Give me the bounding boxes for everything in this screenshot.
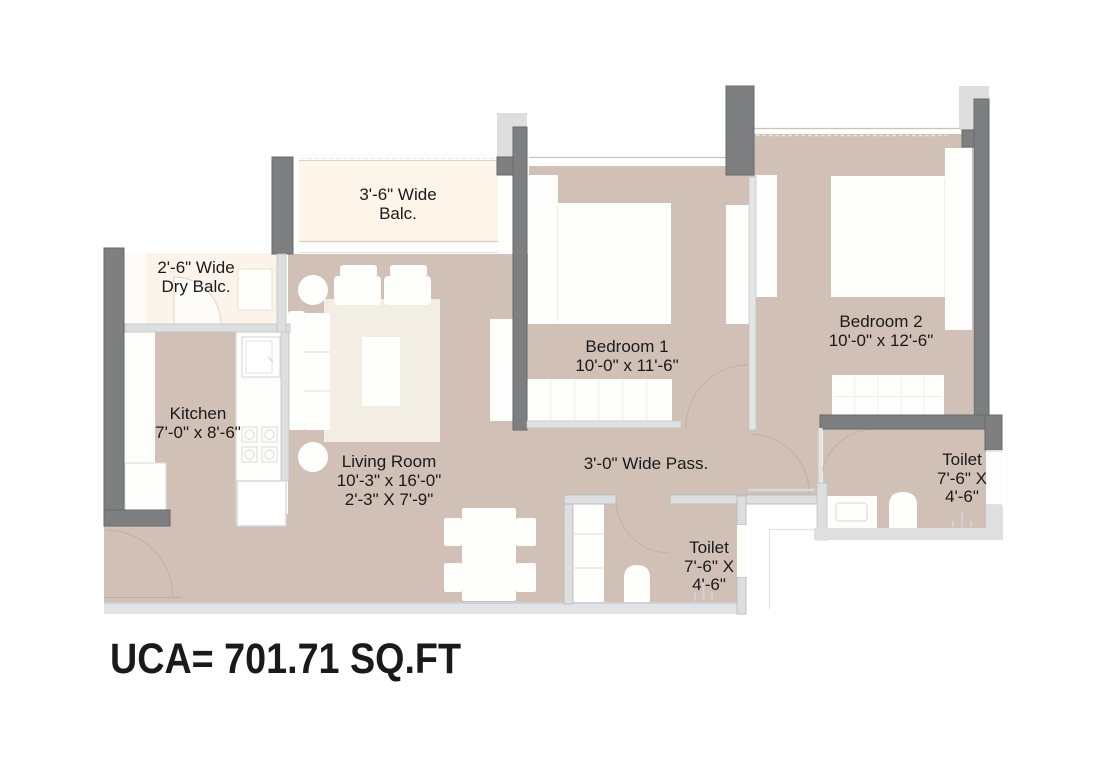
svg-text:7'-0" x 8'-6": 7'-0" x 8'-6" xyxy=(155,423,241,442)
svg-text:Bedroom 2: Bedroom 2 xyxy=(839,312,922,331)
svg-text:Bedroom 1: Bedroom 1 xyxy=(585,337,668,356)
svg-text:10'-3" x 16'-0": 10'-3" x 16'-0" xyxy=(337,471,442,490)
svg-text:2'-3" X 7'-9": 2'-3" X 7'-9" xyxy=(345,490,434,509)
svg-text:10'-0" x 11'-6": 10'-0" x 11'-6" xyxy=(575,356,678,375)
svg-text:Dry Balc.: Dry Balc. xyxy=(162,277,231,296)
svg-text:UCA= 701.71 SQ.FT: UCA= 701.71 SQ.FT xyxy=(110,635,461,683)
svg-text:7'-6" X: 7'-6" X xyxy=(937,469,987,488)
svg-text:4'-6": 4'-6" xyxy=(692,575,726,594)
svg-text:7'-6" X: 7'-6" X xyxy=(684,557,734,576)
svg-text:Kitchen: Kitchen xyxy=(170,404,227,423)
svg-text:Balc.: Balc. xyxy=(379,204,417,223)
svg-text:3'-6" Wide: 3'-6" Wide xyxy=(359,185,436,204)
svg-text:4'-6": 4'-6" xyxy=(945,487,979,506)
svg-text:Toilet: Toilet xyxy=(942,450,982,469)
svg-text:2'-6" Wide: 2'-6" Wide xyxy=(157,258,234,277)
svg-text:10'-0" x 12'-6": 10'-0" x 12'-6" xyxy=(829,331,934,350)
svg-text:Toilet: Toilet xyxy=(689,538,729,557)
svg-text:3'-0" Wide Pass.: 3'-0" Wide Pass. xyxy=(584,454,709,473)
svg-text:Living Room: Living Room xyxy=(342,452,437,471)
